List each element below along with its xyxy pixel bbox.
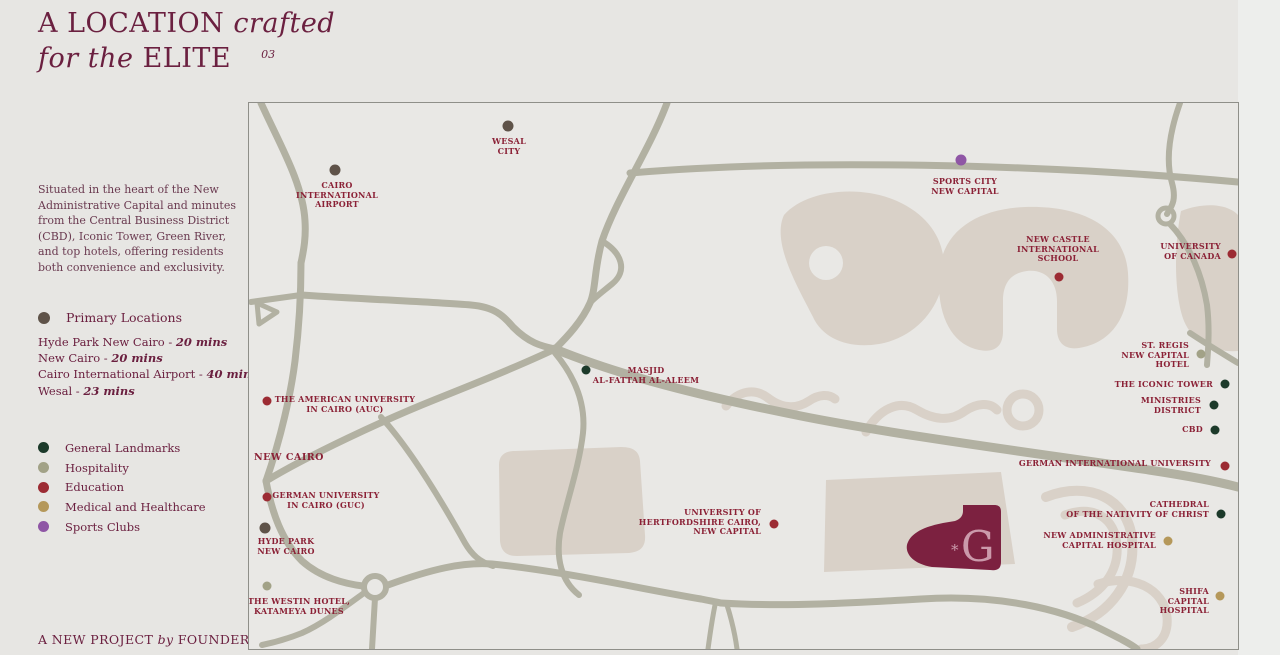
legend-label: Hospitality: [65, 461, 129, 475]
general-dot-icon: [1210, 401, 1219, 410]
legend-row-general: General Landmarks: [38, 438, 206, 458]
map-label-the-iconic-tower: THE ICONIC TOWER: [1115, 380, 1213, 390]
map-label-hyde-park-new-cairo: HYDE PARKNEW CAIRO: [257, 537, 314, 556]
primary-dot-icon: [330, 165, 341, 176]
footer-brand: FOUNDERS: [178, 632, 259, 647]
general-landmarks-dot-icon: [38, 442, 49, 453]
general-dot-icon: [1217, 510, 1226, 519]
hospitality-dot-icon: [38, 462, 49, 473]
map-label-cbd: CBD: [1182, 425, 1203, 435]
page-number: 03: [261, 48, 275, 61]
distance-list: Hyde Park New Cairo - 20 mins New Cairo …: [38, 334, 258, 399]
map-label-new-castle-international-school: NEW CASTLEINTERNATIONALSCHOOL: [1017, 235, 1099, 264]
title-caps-2: ELITE: [143, 43, 232, 74]
primary-dot-icon: [503, 121, 514, 132]
general-dot-icon: [582, 366, 591, 375]
map-label-new-administrative-capital-hospital: NEW ADMINISTRATIVECAPITAL HOSPITAL: [1043, 531, 1156, 550]
sports-dot-icon: [956, 155, 967, 166]
map-label-st-regis-new-capital-hotel: ST. REGISNEW CAPITALHOTEL: [1121, 341, 1189, 370]
education-dot-icon: [1228, 250, 1237, 259]
map-label-german-international-university: GERMAN INTERNATIONAL UNIVERSITY: [1019, 459, 1211, 469]
hospitality-dot-icon: [263, 582, 272, 591]
education-dot-icon: [770, 520, 779, 529]
education-dot-icon: [263, 493, 272, 502]
general-dot-icon: [1211, 426, 1220, 435]
education-dot-icon: [1221, 462, 1230, 471]
footer-by: by: [158, 632, 174, 647]
map-label-masjid-al-fattah-al-aleem: MASJIDAL-FATTAH AL-ALEEM: [593, 366, 699, 385]
distance-place: Hyde Park New Cairo -: [38, 335, 172, 349]
title-italic-1: crafted: [233, 8, 335, 39]
map-label-ministries-district: MINISTRIESDISTRICT: [1141, 396, 1201, 415]
location-description: Situated in the heart of the New Adminis…: [38, 182, 236, 275]
education-dot-icon: [263, 397, 272, 406]
distance-row: Hyde Park New Cairo - 20 mins: [38, 334, 258, 350]
medical-dot-icon: [1164, 537, 1173, 546]
map-label-new-cairo-region: NEW CAIRO: [254, 453, 324, 463]
distance-place: Wesal -: [38, 384, 80, 398]
distance-time: 23 mins: [83, 384, 134, 398]
primary-dot-icon: [38, 312, 50, 324]
map-label-german-university-in-cairo: GERMAN UNIVERSITYIN CAIRO (GUC): [272, 491, 379, 510]
distance-row: Cairo International Airport - 40 mins: [38, 366, 258, 382]
medical-dot-icon: [1216, 592, 1225, 601]
distance-place: Cairo International Airport -: [38, 367, 203, 381]
sports-clubs-dot-icon: [38, 521, 49, 532]
page-title: A LOCATION crafted for the ELITE03: [38, 8, 335, 74]
distance-time: 20 mins: [176, 335, 227, 349]
title-line-2: for the ELITE03: [38, 39, 335, 74]
title-italic-2: for the: [38, 43, 133, 74]
title-caps-1: A LOCATION: [38, 8, 224, 39]
map-label-university-of-canada: UNIVERSITYOF CANADA: [1160, 242, 1221, 261]
legend-label: General Landmarks: [65, 441, 180, 455]
map-label-university-of-hertfordshire-cairo: UNIVERSITY OFHERTFORDSHIRE CAIRO,NEW CAP…: [639, 508, 761, 537]
legend-row-education: Education: [38, 477, 206, 497]
distance-time: 20 mins: [111, 351, 162, 365]
map-label-the-westin-hotel-katameya-dunes: THE WESTIN HOTEL,KATAMEYA DUNES: [248, 597, 350, 616]
map-label-american-university-in-cairo: THE AMERICAN UNIVERSITYIN CAIRO (AUC): [275, 395, 416, 414]
distance-row: Wesal - 23 mins: [38, 383, 258, 399]
distance-row: New Cairo - 20 mins: [38, 350, 258, 366]
map-label-cairo-international-airport: CAIROINTERNATIONALAIRPORT: [296, 181, 378, 210]
project-footer: A NEW PROJECT by FOUNDERS: [38, 632, 259, 647]
brochure-page: A LOCATION crafted for the ELITE03 Situa…: [0, 0, 1280, 655]
legend-label: Education: [65, 480, 124, 494]
title-line-1: A LOCATION crafted: [38, 8, 335, 39]
primary-locations-label: Primary Locations: [66, 310, 182, 325]
primary-locations-legend: Primary Locations: [38, 310, 182, 325]
map-label-sports-city-new-capital: SPORTS CITYNEW CAPITAL: [931, 177, 999, 196]
general-dot-icon: [1221, 380, 1230, 389]
map-label-cathedral-of-the-nativity-of-christ: CATHEDRALOF THE NATIVITY OF CHRIST: [1066, 500, 1209, 519]
page-right-margin: [1238, 0, 1280, 655]
map-markers: WESALCITYCAIROINTERNATIONALAIRPORTSPORTS…: [249, 103, 1238, 649]
education-dot-icon: [38, 482, 49, 493]
medical-dot-icon: [38, 501, 49, 512]
legend-label: Sports Clubs: [65, 520, 140, 534]
education-dot-icon: [1055, 273, 1064, 282]
map-label-wesal-city: WESALCITY: [492, 137, 526, 156]
legend-row-sports: Sports Clubs: [38, 517, 206, 537]
category-legend: General Landmarks Hospitality Education …: [38, 438, 206, 536]
footer-pre: A NEW PROJECT: [38, 632, 153, 647]
location-map: G * WESALCITYCAIROINTERNATIONALAIRPORTSP…: [248, 102, 1239, 650]
primary-dot-icon: [260, 523, 271, 534]
legend-label: Medical and Healthcare: [65, 500, 206, 514]
map-label-shifa-capital-hospital: SHIFACAPITALHOSPITAL: [1160, 587, 1209, 616]
hospitality-dot-icon: [1197, 350, 1206, 359]
legend-row-medical: Medical and Healthcare: [38, 497, 206, 517]
legend-row-hospitality: Hospitality: [38, 458, 206, 478]
distance-place: New Cairo -: [38, 351, 108, 365]
